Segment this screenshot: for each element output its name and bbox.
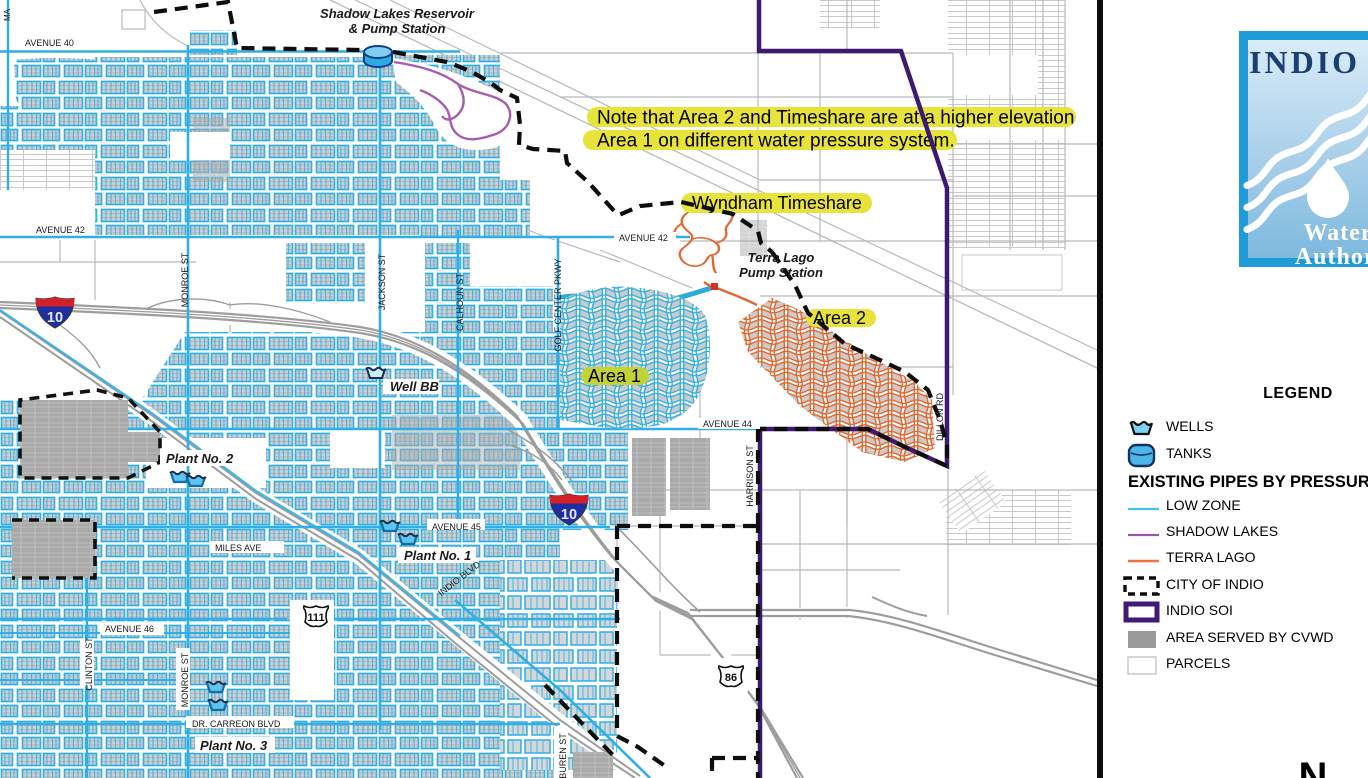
svg-text:AVENUE 42: AVENUE 42 bbox=[619, 233, 668, 243]
svg-text:N: N bbox=[1299, 755, 1328, 778]
svg-text:MILES AVE: MILES AVE bbox=[215, 543, 261, 553]
svg-text:10: 10 bbox=[47, 310, 63, 326]
svg-text:Water: Water bbox=[1304, 220, 1368, 246]
svg-text:JACKSON ST: JACKSON ST bbox=[377, 253, 387, 310]
svg-text:111: 111 bbox=[307, 612, 324, 624]
svg-text:LOW ZONE: LOW ZONE bbox=[1166, 497, 1241, 513]
svg-text:Shadow Lakes Reservoir: Shadow Lakes Reservoir bbox=[320, 6, 475, 21]
svg-text:Area 1 on different water pres: Area 1 on different water pressure syste… bbox=[597, 131, 955, 152]
svg-text:Plant No. 2: Plant No. 2 bbox=[166, 451, 234, 466]
svg-text:TANKS: TANKS bbox=[1166, 445, 1212, 461]
svg-text:GOLF CENTER PKWY: GOLF CENTER PKWY bbox=[553, 258, 563, 351]
svg-text:AVENUE 45: AVENUE 45 bbox=[432, 522, 481, 532]
svg-text:DR. CARREON BLVD: DR. CARREON BLVD bbox=[192, 719, 281, 729]
svg-text:Pump Station: Pump Station bbox=[739, 265, 823, 280]
svg-text:AVENUE 44: AVENUE 44 bbox=[703, 419, 752, 429]
svg-text:CITY OF INDIO: CITY OF INDIO bbox=[1166, 576, 1264, 592]
svg-text:EXISTING PIPES BY PRESSURE: EXISTING PIPES BY PRESSURE bbox=[1128, 473, 1368, 491]
svg-text:MA: MA bbox=[3, 8, 12, 21]
svg-text:DILLON RD: DILLON RD bbox=[935, 392, 945, 441]
svg-text:Well BB: Well BB bbox=[390, 379, 439, 394]
svg-text:MONROE ST: MONROE ST bbox=[180, 252, 190, 307]
svg-text:Note that Area 2 and Timeshare: Note that Area 2 and Timeshare are at a … bbox=[597, 108, 1074, 129]
svg-text:HARRISON ST: HARRISON ST bbox=[745, 445, 755, 507]
svg-text:MONROE ST: MONROE ST bbox=[180, 652, 190, 707]
svg-text:SHADOW LAKES: SHADOW LAKES bbox=[1166, 523, 1278, 539]
svg-text:Plant No. 3: Plant No. 3 bbox=[200, 738, 268, 753]
svg-text:CLINTON ST: CLINTON ST bbox=[84, 637, 94, 691]
svg-text:& Pump Station: & Pump Station bbox=[349, 21, 446, 36]
svg-text:10: 10 bbox=[561, 507, 577, 523]
svg-text:AVENUE 46: AVENUE 46 bbox=[105, 624, 154, 634]
svg-text:CALHOUN ST: CALHOUN ST bbox=[455, 272, 465, 331]
svg-text:AREA SERVED BY CVWD: AREA SERVED BY CVWD bbox=[1166, 629, 1334, 645]
svg-text:Authority: Authority bbox=[1295, 244, 1368, 270]
svg-text:Plant No. 1: Plant No. 1 bbox=[404, 548, 471, 563]
svg-text:86: 86 bbox=[725, 672, 737, 684]
svg-text:Area 1: Area 1 bbox=[588, 366, 641, 386]
svg-text:TERRA LAGO: TERRA LAGO bbox=[1166, 549, 1256, 565]
svg-text:LEGEND: LEGEND bbox=[1263, 385, 1333, 402]
svg-text:BUREN ST: BUREN ST bbox=[558, 733, 568, 778]
svg-text:PARCELS: PARCELS bbox=[1166, 655, 1230, 671]
svg-text:AVENUE 42: AVENUE 42 bbox=[36, 225, 85, 235]
svg-text:Terra Lago: Terra Lago bbox=[748, 250, 815, 265]
svg-text:AVENUE 40: AVENUE 40 bbox=[25, 38, 74, 48]
svg-text:INDIO SOI: INDIO SOI bbox=[1166, 602, 1233, 618]
svg-text:WELLS: WELLS bbox=[1166, 418, 1213, 434]
svg-text:INDIO: INDIO bbox=[1249, 44, 1360, 80]
svg-text:Wyndham Timeshare: Wyndham Timeshare bbox=[692, 193, 862, 213]
